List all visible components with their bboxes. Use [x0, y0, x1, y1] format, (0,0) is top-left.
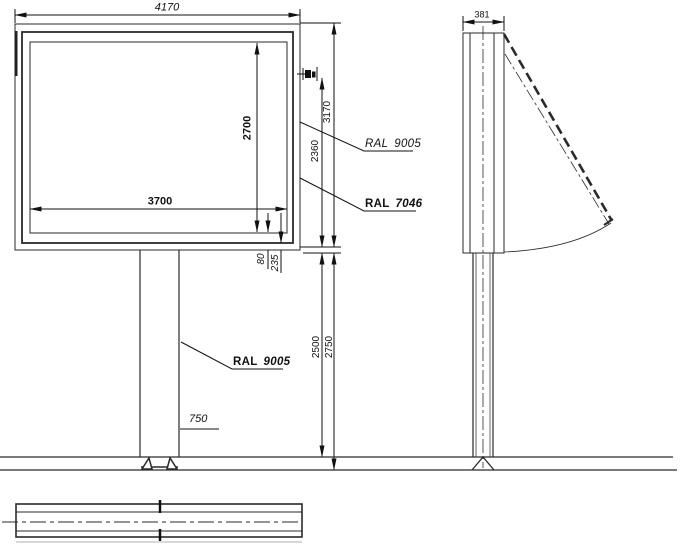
dim-clearance-label: 2500	[312, 336, 322, 358]
ral-prefix: RAL	[365, 138, 388, 150]
base-gusset-left	[142, 458, 152, 469]
dim-face-height-label: 2360	[311, 140, 321, 162]
plan-view	[2, 500, 302, 542]
ground	[0, 457, 677, 470]
ral-7046-label: RAL7046	[365, 199, 422, 211]
dim-edge-offset-label: 80	[257, 253, 267, 264]
ral-prefix: RAL	[233, 356, 258, 368]
ral-9005-pole-label: RAL9005	[233, 357, 290, 369]
ral-value: 7046	[396, 198, 423, 210]
open-panel-centerline	[505, 54, 609, 224]
swing-arc	[504, 223, 611, 252]
leader-lines	[181, 122, 416, 369]
base-gusset-right	[167, 458, 177, 469]
dim-pole-width-label: 750	[189, 414, 207, 425]
ral-value: 9005	[264, 356, 291, 368]
open-panel-tip	[604, 219, 613, 225]
ral-9005-top-label: RAL9005	[365, 139, 421, 151]
open-panel-dashed-line	[504, 34, 612, 221]
ral-value: 9005	[394, 138, 421, 150]
dim-panel-height-label: 2700	[243, 116, 254, 140]
dim-box-height-label: 3170	[323, 101, 333, 123]
ral-prefix: RAL	[365, 198, 390, 210]
dim-total-clearance-label: 2750	[325, 336, 335, 358]
dim-frame-offset-label: 235	[271, 255, 281, 272]
dim-side-depth-label: 381	[474, 11, 489, 20]
billboard-technical-drawing: 4170 3700 2700 3170 2360 2500 2750 80 23…	[0, 0, 684, 551]
dim-front-width-label: 4170	[155, 3, 179, 14]
dim-panel-width-label: 3700	[148, 197, 172, 208]
side-cabinet-box	[463, 33, 504, 253]
side-view	[463, 16, 613, 470]
drawing-geometry	[0, 0, 684, 551]
